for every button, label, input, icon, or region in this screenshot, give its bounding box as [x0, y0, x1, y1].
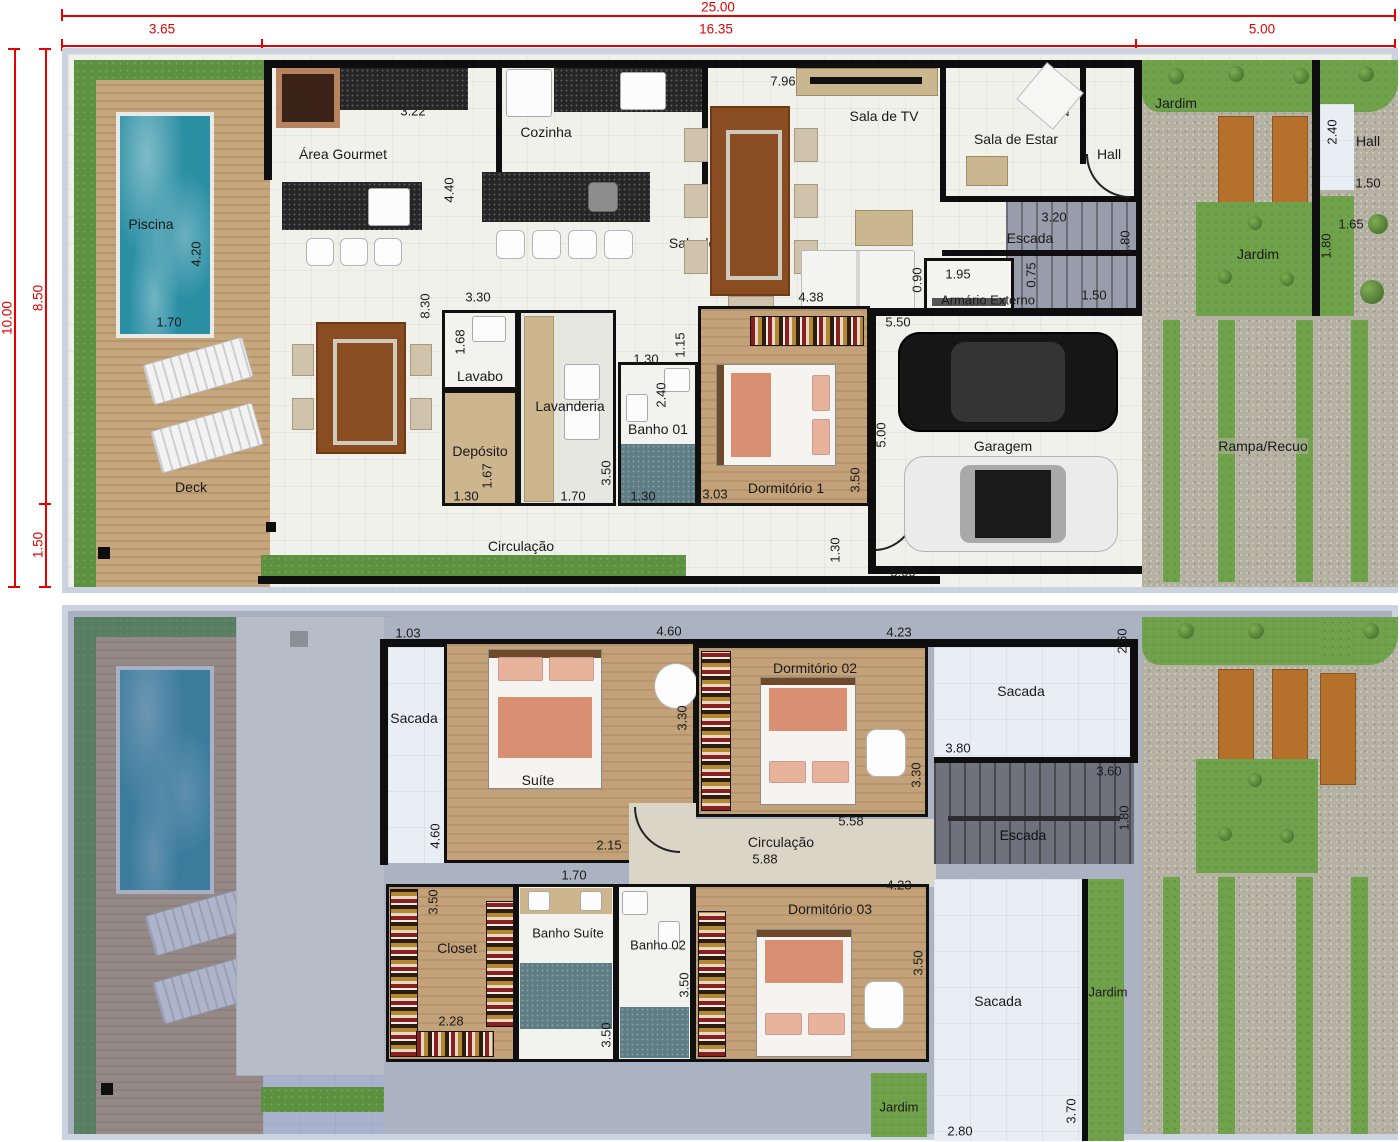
stair-rail — [948, 816, 1120, 821]
dim-armario-width: 1.95 — [945, 267, 970, 282]
dim-banho01-bottom: 1.30 — [630, 489, 655, 504]
wardrobe-figure — [416, 1031, 494, 1057]
dim-deposito-width: 1.30 — [453, 489, 478, 504]
label-escada-f2: Escada — [1000, 827, 1047, 843]
dim-hall-ext-width: 1.50 — [1355, 176, 1380, 191]
dim-pool-width: 1.70 — [156, 315, 181, 330]
label-rampa: Rampa/Recuo — [1218, 438, 1308, 454]
plant-icon — [1280, 272, 1294, 286]
sun-lounger-figure — [1272, 116, 1308, 214]
stool-figure — [374, 238, 402, 266]
dim-sofa-width: 4.38 — [798, 290, 823, 305]
label-area-gourmet: Área Gourmet — [299, 146, 387, 162]
tick — [39, 48, 51, 50]
wardrobe-figure — [750, 316, 864, 346]
dim-dorm3-height: 3.50 — [911, 950, 926, 975]
dim-sacada-h2: 4.60 — [428, 823, 443, 848]
bed-figure — [716, 364, 836, 466]
sink-figure — [472, 316, 506, 342]
label-banho02: Banho 02 — [630, 938, 686, 953]
sideboard-figure — [855, 210, 913, 246]
dim-dorm2-width: 4.23 — [886, 625, 911, 640]
dim-banho-suite-door: 1.70 — [561, 868, 586, 883]
wall — [1080, 64, 1086, 164]
label-circulacao-f2: Circulação — [748, 834, 814, 850]
label-jardim-right: Jardim — [1237, 246, 1279, 262]
chair-figure — [684, 128, 708, 162]
label-deck: Deck — [175, 479, 207, 495]
label-circulacao-f1: Circulação — [488, 538, 554, 554]
label-jardim-top: Jardim — [1155, 95, 1197, 111]
dim-cozinha-height: 4.40 — [442, 177, 457, 202]
label-dorm2: Dormitório 02 — [773, 660, 857, 676]
wall — [264, 60, 272, 180]
tick — [1394, 9, 1396, 21]
chair-figure — [864, 981, 904, 1029]
label-dorm3: Dormitório 03 — [788, 901, 872, 917]
label-armario-externo: Armário Externo — [941, 293, 1035, 308]
dim-sofa-height: 0.90 — [910, 267, 925, 292]
label-sala-estar: Sala de Estar — [974, 131, 1058, 147]
upper-floor-plan: 1.03 Sacada 4.60 4.60 4.60 Suíte 3.30 5.… — [62, 605, 1398, 1140]
chair-figure — [292, 344, 314, 376]
sink-figure — [622, 891, 648, 915]
dim-sacada-tr-width: 3.80 — [945, 741, 970, 756]
wardrobe-figure — [698, 911, 726, 1057]
wall — [940, 64, 946, 200]
chair-figure — [410, 344, 432, 376]
sun-lounger-figure — [1218, 669, 1254, 767]
chair-figure — [654, 663, 698, 709]
ramp-stripe — [1296, 877, 1313, 1134]
label-sacada-b: Sacada — [974, 993, 1021, 1009]
dim-height-a: 8.50 — [31, 285, 46, 311]
dim-sacada-tr-height: 2.60 — [1115, 628, 1130, 653]
hedge-top — [96, 60, 270, 80]
plant-icon — [1168, 68, 1184, 84]
ramp-stripe — [1163, 877, 1180, 1134]
label-dorm1: Dormitório 1 — [748, 480, 824, 496]
bed-figure — [756, 929, 852, 1057]
stool-figure — [340, 238, 368, 266]
ramp-stripe — [1163, 320, 1180, 582]
plant-icon — [1218, 827, 1232, 841]
sun-lounger-figure — [1218, 116, 1254, 214]
sink-figure — [580, 891, 602, 911]
dim-dorm3-width: 4.23 — [886, 878, 911, 893]
plant-icon — [1293, 68, 1309, 84]
fridge-figure — [506, 69, 552, 117]
tick — [8, 586, 20, 588]
plant-icon — [1368, 214, 1388, 234]
plant-icon — [1280, 829, 1294, 843]
label-deposito: Depósito — [452, 443, 507, 459]
chair-figure — [794, 184, 818, 218]
label-closet: Closet — [437, 940, 477, 956]
sun-lounger-figure — [1320, 673, 1356, 785]
dim-lavabo-height: 1.68 — [453, 329, 468, 354]
plant-icon — [1248, 773, 1262, 787]
dim-banho02-height: 3.50 — [677, 972, 692, 997]
dim-escada-f2-height: 1.80 — [1117, 805, 1132, 830]
kitchen-island — [482, 172, 650, 222]
dim-service-width: 3.30 — [465, 290, 490, 305]
dim-pool-height: 4.20 — [189, 241, 204, 266]
label-lavanderia: Lavanderia — [535, 398, 604, 414]
dim-suite-width: 4.60 — [656, 624, 681, 639]
dim-sacada-b-width: 2.80 — [947, 1124, 972, 1139]
tick — [39, 503, 51, 505]
garden-patch — [1321, 619, 1353, 661]
toilet-figure — [626, 394, 648, 422]
wardrobe-figure — [701, 651, 731, 811]
dim-segment-b: 16.35 — [699, 22, 733, 37]
label-sacada-tr: Sacada — [997, 683, 1044, 699]
label-piscina: Piscina — [128, 216, 173, 232]
ground-floor-plan: Piscina 4.20 1.70 Deck Área Gourmet 3.22… — [62, 48, 1398, 593]
dim-line-total-width — [61, 15, 1396, 17]
dim-armario-height: 0.75 — [1024, 262, 1039, 287]
dim-closet-height: 3.50 — [426, 889, 441, 914]
dim-dorm1-width: 3.03 — [702, 487, 727, 502]
roof-vent — [290, 631, 308, 647]
washer-figure — [564, 364, 600, 400]
dim-deposito-height: 1.67 — [480, 463, 495, 488]
wardrobe-figure — [486, 901, 514, 1027]
dim-jardim-height: 1.80 — [1319, 233, 1334, 258]
dim-segment-c: 5.00 — [1249, 22, 1275, 37]
plant-icon — [1178, 623, 1194, 639]
gourmet-counter — [340, 68, 468, 110]
stool-figure — [496, 230, 525, 259]
car-figure-black — [898, 332, 1118, 432]
wall — [934, 757, 1138, 763]
dim-segment-a: 3.65 — [149, 22, 175, 37]
sun-lounger-figure — [1272, 669, 1308, 767]
label-jardim-small: Jardim — [879, 1100, 918, 1115]
bed-figure — [488, 649, 602, 789]
door-arc — [1086, 154, 1130, 198]
shower-tile — [520, 963, 612, 1029]
tick — [8, 48, 20, 50]
dim-dorm2-height: 3.30 — [909, 762, 924, 787]
dim-suite-closet: 2.15 — [596, 838, 621, 853]
label-suite: Suíte — [522, 772, 555, 788]
dim-gourmet-height: 8.30 — [418, 293, 433, 318]
dim-circ-b: 5.88 — [752, 852, 777, 867]
sink-figure — [528, 891, 550, 911]
label-sala-tv: Sala de TV — [849, 108, 918, 124]
wardrobe-figure — [390, 889, 418, 1057]
grill-figure — [276, 68, 340, 128]
label-banho-suite: Banho Suíte — [532, 926, 604, 941]
stove-figure — [620, 72, 666, 110]
label-hall-ext: Hall — [1356, 133, 1380, 149]
dining-table-figure — [710, 106, 790, 296]
hall-ext-floor — [1320, 104, 1354, 190]
dim-suite-height: 3.30 — [675, 705, 690, 730]
dim-hall-ext-height: 2.40 — [1325, 119, 1340, 144]
dim-closet-width: 2.28 — [438, 1014, 463, 1029]
dim-tv-width: 7.96 — [770, 74, 795, 89]
label-escada-f1: Escada — [1007, 230, 1054, 246]
plant-icon — [1363, 623, 1379, 639]
dim-banho-suite-height: 3.50 — [599, 1022, 614, 1047]
wall — [1130, 639, 1138, 761]
plant-icon — [1218, 270, 1232, 284]
dim-sacada-width: 1.03 — [395, 626, 420, 641]
wall — [942, 250, 1138, 256]
chair-figure — [684, 240, 708, 274]
dim-line-height-segments — [45, 48, 47, 588]
label-jardim-strip: Jardim — [1088, 985, 1127, 1000]
plant-icon — [1248, 216, 1262, 230]
dim-height-b: 1.50 — [31, 532, 46, 558]
plant-icon — [1228, 66, 1244, 82]
sink-figure — [588, 182, 618, 212]
stool-figure — [532, 230, 561, 259]
stool-figure — [306, 238, 334, 266]
dim-escada-bottom: 1.50 — [1081, 288, 1106, 303]
dim-banho01-top: 1.30 — [633, 352, 658, 367]
post — [98, 547, 110, 559]
hedge-left — [74, 60, 96, 587]
chair-figure — [866, 729, 906, 777]
dim-sacada-b-height: 3.70 — [1064, 1098, 1079, 1123]
roof-slab — [236, 616, 396, 1076]
dim-dorm1-door: 1.30 — [828, 537, 843, 562]
dim-lavanderia-height: 3.50 — [599, 460, 614, 485]
label-sacada-left: Sacada — [390, 710, 437, 726]
car-figure-white — [904, 456, 1118, 552]
jardim-strip — [1088, 879, 1124, 1141]
floorplan-page: { "outer_dims": { "top_total": "25.00", … — [0, 0, 1400, 1142]
wall — [1312, 60, 1320, 190]
label-garagem: Garagem — [974, 438, 1032, 454]
cooktop-figure — [368, 188, 410, 226]
tick — [61, 9, 63, 21]
outdoor-table-figure — [316, 322, 406, 454]
dim-escada-f2-width: 3.60 — [1096, 764, 1121, 779]
dim-escada-height: 1.80 — [1118, 230, 1133, 255]
chair-figure — [684, 184, 708, 218]
post — [101, 1083, 113, 1095]
label-lavabo: Lavabo — [457, 368, 503, 384]
chair-figure — [410, 398, 432, 430]
stool-figure — [568, 230, 597, 259]
armchair-figure — [1016, 62, 1084, 130]
shower-tile — [620, 1007, 689, 1058]
plant-icon — [1248, 623, 1264, 639]
dim-escada-width: 3.20 — [1041, 210, 1066, 225]
label-banho01: Banho 01 — [628, 421, 688, 437]
dim-jardim-width: 1.65 — [1338, 217, 1363, 232]
chair-figure — [794, 128, 818, 162]
dim-garagem-side: 5.00 — [874, 422, 889, 447]
ramp-stripe — [1351, 877, 1368, 1134]
dim-dorm1-height: 3.50 — [848, 467, 863, 492]
ramp-stripe — [1218, 877, 1235, 1134]
chair-figure — [292, 398, 314, 430]
stool-figure — [604, 230, 633, 259]
dim-banho01-height: 2.40 — [654, 382, 669, 407]
room-sacada-b — [934, 879, 1082, 1141]
tick — [39, 586, 51, 588]
dim-dorm1-entry: 1.15 — [673, 332, 688, 357]
ramp-stripe — [1351, 320, 1368, 582]
label-cozinha: Cozinha — [520, 124, 571, 140]
dim-garagem-top: 5.50 — [885, 315, 910, 330]
bed-figure — [760, 677, 856, 805]
plant-icon — [1360, 280, 1384, 304]
dim-total-height: 10.00 — [0, 301, 15, 335]
plant-icon — [1358, 66, 1374, 82]
tv-icon — [810, 77, 922, 84]
post — [266, 522, 276, 532]
wall — [258, 576, 940, 584]
dim-garagem-bottom: 5.00 — [890, 565, 915, 580]
dim-total-width: 25.00 — [701, 0, 735, 15]
dim-lavanderia-width: 1.70 — [560, 489, 585, 504]
wall — [380, 639, 388, 865]
side-table-figure — [966, 156, 1008, 186]
